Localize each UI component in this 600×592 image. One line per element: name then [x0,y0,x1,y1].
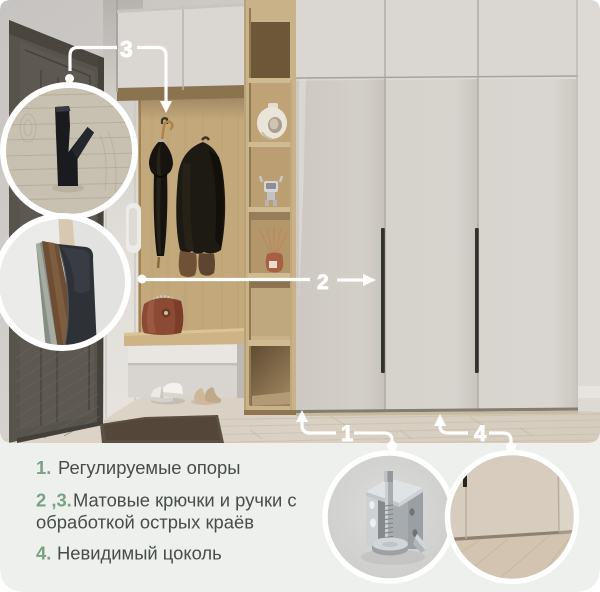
svg-text:4.Невидимый цоколь: 4.Невидимый цоколь [36,543,222,564]
svg-text:1: 1 [341,421,353,446]
svg-text:обработкой острых краёв: обработкой острых краёв [36,512,254,533]
svg-text:2 ,3.Матовые крючки и ручки с: 2 ,3.Матовые крючки и ручки с [36,490,297,511]
svg-text:1.Регулируемые опоры: 1.Регулируемые опоры [36,457,241,478]
svg-text:2: 2 [317,271,329,294]
svg-text:3: 3 [120,36,133,62]
svg-text:4: 4 [474,421,487,446]
